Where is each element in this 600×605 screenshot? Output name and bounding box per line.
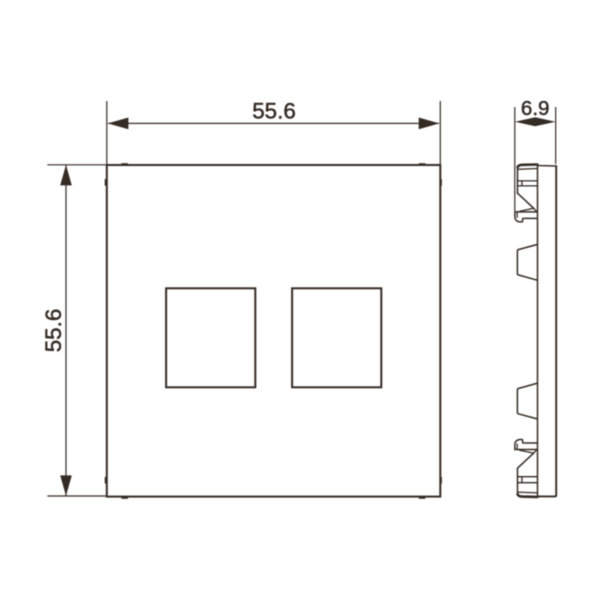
svg-text:55.6: 55.6 xyxy=(252,98,296,123)
svg-text:55.6: 55.6 xyxy=(41,309,66,353)
svg-text:6.9: 6.9 xyxy=(521,97,550,120)
